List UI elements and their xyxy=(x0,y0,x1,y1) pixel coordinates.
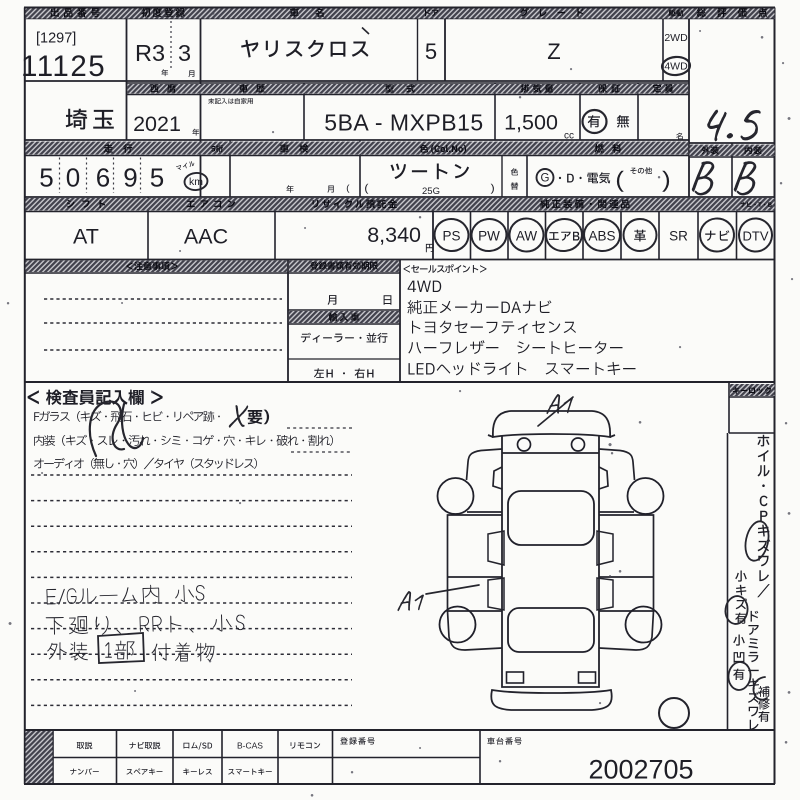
svg-text:AW: AW xyxy=(516,229,538,244)
svg-text:2021: 2021 xyxy=(133,112,181,136)
svg-text:DTV: DTV xyxy=(743,229,769,244)
svg-text:5: 5 xyxy=(150,163,164,193)
svg-text:9: 9 xyxy=(123,163,137,193)
svg-text:5: 5 xyxy=(39,163,53,193)
svg-text:25G: 25G xyxy=(422,186,440,197)
svg-text:AAC: AAC xyxy=(184,225,228,249)
svg-text:cc: cc xyxy=(564,131,574,142)
svg-text:Z: Z xyxy=(547,39,560,64)
svg-text:5: 5 xyxy=(425,39,437,64)
svg-text:3: 3 xyxy=(178,40,191,66)
svg-text:1,500: 1,500 xyxy=(504,111,558,135)
svg-text:SR: SR xyxy=(669,229,688,244)
svg-text:ABS: ABS xyxy=(588,229,615,244)
svg-text:B-CAS: B-CAS xyxy=(237,741,263,751)
svg-text:8,340: 8,340 xyxy=(367,223,421,247)
svg-text:R3: R3 xyxy=(135,40,165,66)
svg-text:AT: AT xyxy=(73,225,99,249)
svg-text:2WD: 2WD xyxy=(664,32,688,44)
svg-text:km: km xyxy=(189,176,203,188)
svg-text:4WD: 4WD xyxy=(664,61,688,73)
svg-text:5BA - MXPB15: 5BA - MXPB15 xyxy=(324,110,483,136)
svg-text:PW: PW xyxy=(478,229,500,244)
svg-text:0: 0 xyxy=(66,163,80,193)
svg-text:11125: 11125 xyxy=(21,50,106,83)
svg-text:PS: PS xyxy=(442,229,460,244)
svg-text:6: 6 xyxy=(96,163,110,193)
svg-text:[1297]: [1297] xyxy=(36,31,76,47)
svg-text:G: G xyxy=(541,173,550,185)
svg-text:2002705: 2002705 xyxy=(588,755,693,785)
